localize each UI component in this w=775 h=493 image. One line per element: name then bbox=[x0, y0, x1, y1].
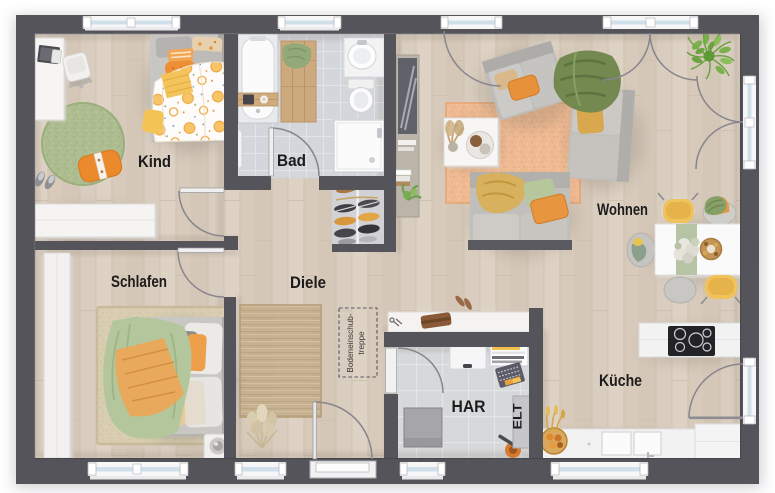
svg-text:Schlafen: Schlafen bbox=[111, 273, 167, 291]
svg-text:Wohnen: Wohnen bbox=[597, 201, 648, 219]
svg-text:treppe: treppe bbox=[357, 331, 366, 355]
svg-text:Küche: Küche bbox=[599, 372, 642, 390]
svg-text:Bodeneinschub-: Bodeneinschub- bbox=[346, 313, 355, 372]
svg-text:HAR: HAR bbox=[452, 398, 486, 416]
svg-text:ELT: ELT bbox=[513, 404, 525, 430]
svg-text:Kind: Kind bbox=[138, 153, 171, 171]
svg-text:Diele: Diele bbox=[290, 274, 326, 292]
svg-text:Bad: Bad bbox=[277, 152, 306, 170]
